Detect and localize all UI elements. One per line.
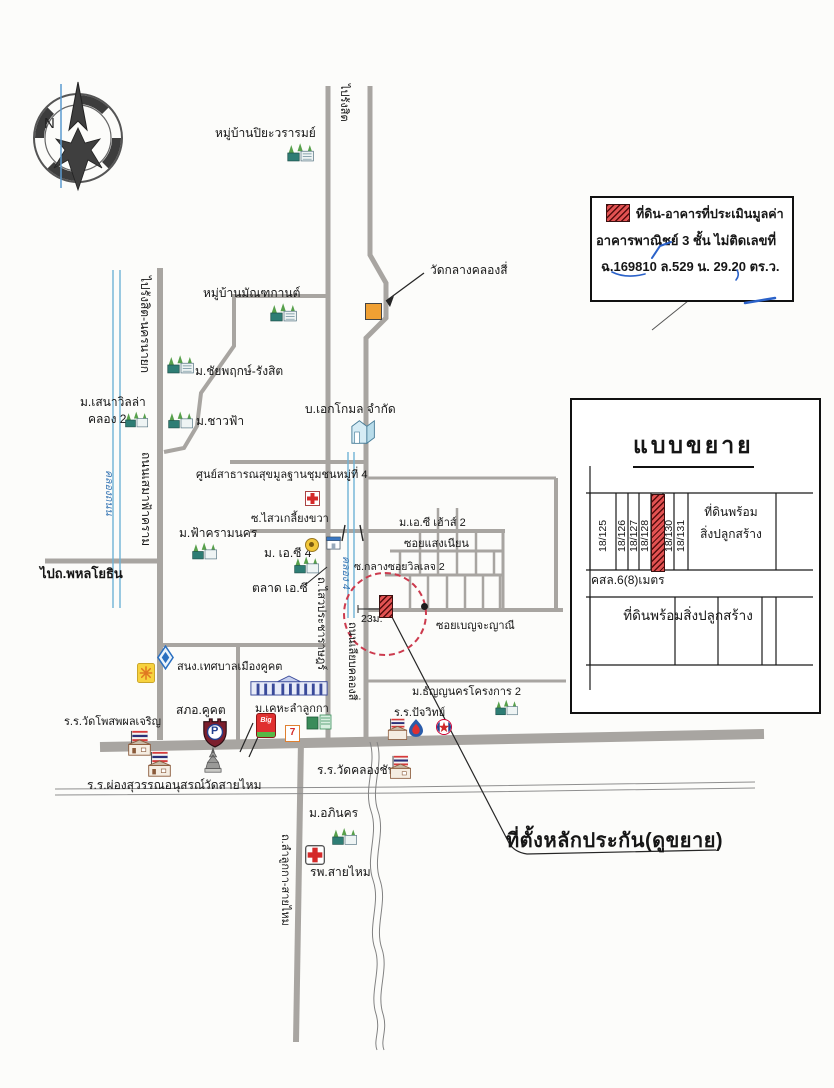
inset-lot-lines bbox=[570, 398, 817, 710]
village-icon bbox=[166, 354, 196, 376]
label-senavilla: ม.เสนาวิลล่า bbox=[80, 396, 146, 409]
label-sawai-kliang-khwa: ซ.ไสวเกลี้ยงขวา bbox=[251, 513, 329, 525]
label-semafakram-road: ถนนเสมาฟ้าคราม bbox=[139, 452, 152, 546]
lot-number: 18/130 bbox=[663, 520, 675, 552]
ac4-sign-icon bbox=[305, 538, 319, 552]
label-to-rangsit: ไปรังสิต bbox=[338, 84, 350, 122]
map-canvas: N ที่ดิน-อาคารที่ประเมินมูลค่า อาคารพาณิ… bbox=[0, 0, 834, 1088]
village-icon bbox=[494, 699, 520, 717]
label-soi-benjayani: ซอยเบญจะญาณี bbox=[436, 620, 515, 632]
label-apinakhon: ม.อภินคร bbox=[309, 807, 358, 820]
school-icon bbox=[146, 751, 173, 778]
lot-number: 18/126 bbox=[616, 520, 628, 552]
compass-rose: N bbox=[28, 76, 128, 192]
temple-chedi-icon bbox=[202, 747, 224, 774]
warehouse-icon bbox=[346, 417, 384, 447]
bigc-icon: Big bbox=[256, 713, 276, 738]
label-fakram-nakhon: ม.ฟ้าครามนคร bbox=[179, 527, 257, 540]
lot-number: 18/128 bbox=[639, 520, 651, 552]
village-icon bbox=[124, 410, 150, 430]
municipality-building-icon bbox=[249, 674, 329, 697]
village-icon bbox=[331, 824, 359, 850]
hospital-cross-icon bbox=[305, 845, 325, 865]
village-icon bbox=[167, 410, 195, 431]
school-icon bbox=[388, 755, 413, 780]
label-thanyanakhon: ม.ธัญญนครโครงการ 2 bbox=[412, 686, 521, 698]
compass-north-label: N bbox=[44, 116, 55, 133]
label-to-rangsit-nakhonnayok: ไปรังสิต-นครนายก bbox=[138, 276, 151, 373]
health-center-cross-icon bbox=[305, 491, 320, 506]
label-mantakan: หมู่บ้านมัณฑกานต์ bbox=[203, 287, 300, 300]
label-wat-khlongchan: ร.ร.วัดคลองชัน bbox=[317, 764, 396, 777]
housing-block-icon bbox=[306, 714, 332, 730]
label-health-center: ศูนย์สาธารณสุขมูลฐานชุมชนหมู่ที่ 4 bbox=[196, 469, 367, 481]
label-liap-khlong-si-road: ถนนเลียบคลองสี่ bbox=[346, 622, 358, 700]
label-municipality: สนง.เทศบาลเมืองคูคต bbox=[177, 661, 282, 673]
label-talad-ac: ตลาด เอ.ซี bbox=[252, 582, 308, 595]
site-callout-label: ที่ตั้งหลักประกัน(ดูขยาย) bbox=[506, 824, 723, 856]
police-p-letter: P bbox=[211, 725, 218, 737]
village-icon bbox=[293, 555, 321, 576]
junction-dot bbox=[421, 603, 428, 610]
label-khlong4-canal: คลอง 4 bbox=[339, 556, 351, 590]
label-piyawararom: หมู่บ้านปิยะวรารมย์ bbox=[215, 127, 316, 140]
label-wat-saimai: วัดสายไหม bbox=[204, 779, 261, 792]
pen-annotations bbox=[560, 180, 820, 320]
frontage-width-label: 23ม. bbox=[361, 614, 383, 626]
label-lamlukka-saimai-road: ถ.ลำลูกกา-สายไหม bbox=[279, 834, 291, 926]
label-phosop: ร.ร.วัดโพสพผลเจริญ bbox=[64, 716, 161, 728]
star-fuel-logo-icon bbox=[436, 719, 452, 735]
village-icon bbox=[286, 142, 316, 164]
inset-road-label: คสล.6(8)เมตร bbox=[591, 574, 665, 587]
village-icon bbox=[269, 302, 299, 324]
village-icon bbox=[191, 541, 219, 562]
diamond-marker-icon bbox=[157, 645, 174, 670]
label-to-phahonyothin: ไปถ.พหลโยธิน bbox=[40, 567, 123, 582]
label-ac-house2: ม.เอ.ซี เฮ้าส์ 2 bbox=[399, 517, 466, 529]
label-senavilla-khlong2: คลอง 2 bbox=[88, 413, 126, 426]
label-khlong-thanon-canal: คลองถนน bbox=[102, 470, 114, 516]
label-wat-klang: วัดกลางคลองสี่ bbox=[430, 264, 508, 277]
wat-klang-temple-icon bbox=[365, 303, 382, 320]
label-chaofa: ม.ชาวฟ้า bbox=[196, 415, 244, 428]
label-saimai-hospital: รพ.สายไหม bbox=[310, 866, 371, 879]
lot-number: 18/125 bbox=[597, 520, 609, 552]
label-soi-saeng-nian: ซอยแสงเนียน bbox=[404, 538, 469, 550]
seven-eleven-icon: 7 bbox=[285, 725, 300, 742]
police-shield-icon: P bbox=[201, 716, 229, 748]
sun-marker-icon bbox=[137, 663, 155, 683]
wide-lot-label: ที่ดินพร้อม bbox=[688, 506, 774, 519]
label-sawai-pracharat-road: ถ.ไสวประชาราษฎร์ bbox=[315, 577, 327, 670]
label-chaiyapruek: ม.ชัยพฤกษ์-รังสิต bbox=[195, 365, 283, 378]
label-ekkomon: บ.เอกโกมล จำกัด bbox=[305, 403, 396, 416]
shop-icon bbox=[326, 536, 341, 550]
wide-lot-label2: สิ่งปลูกสร้าง bbox=[688, 528, 774, 541]
school-icon bbox=[386, 718, 409, 741]
ptt-flame-icon bbox=[409, 719, 423, 737]
label-phongsuwan: ร.ร.ผ่องสุวรรณอนุสรณ์ bbox=[87, 779, 205, 792]
label-soi-klang-village2: ซ.กลางซอยวิลเลจ 2 bbox=[354, 562, 445, 574]
bottom-lot-label: ที่ดินพร้อมสิ่งปลูกสร้าง bbox=[600, 608, 776, 623]
bigc-text: Big bbox=[257, 714, 275, 727]
lot-number: 18/131 bbox=[675, 520, 687, 552]
